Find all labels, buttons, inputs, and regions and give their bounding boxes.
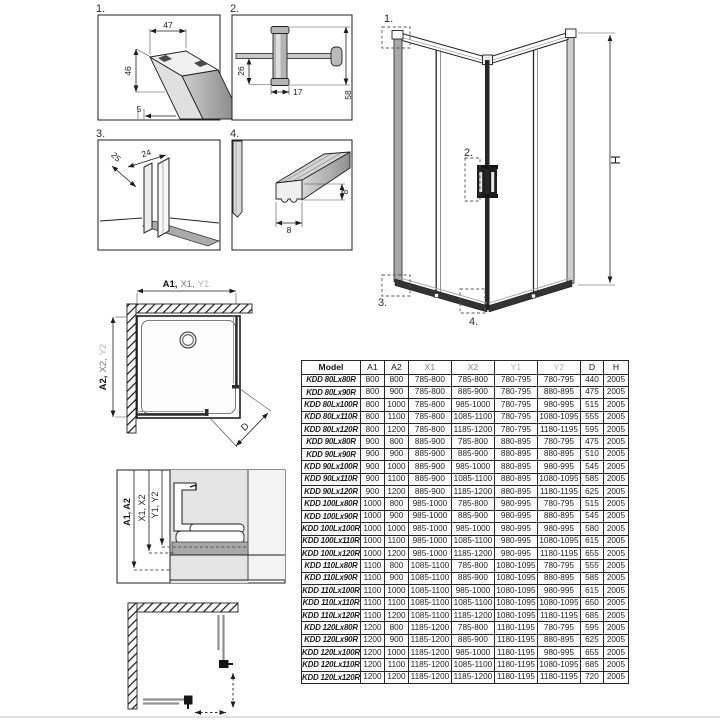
value-cell: 1080-1095: [494, 609, 537, 621]
model-cell: KDD 120Lx110R: [302, 659, 361, 671]
model-cell: KDD 120Lx80R: [302, 622, 361, 634]
column-header: Y2: [537, 361, 580, 375]
value-cell: 2005: [603, 560, 628, 572]
model-cell: KDD 120Lx100R: [302, 647, 361, 659]
value-cell: 475: [580, 436, 603, 448]
value-cell: 1185-1200: [451, 424, 494, 436]
dim-8-bottom: 8: [287, 225, 292, 235]
value-cell: 1085-1100: [408, 560, 451, 572]
model-cell: KDD 110Lx120R: [302, 609, 361, 621]
value-cell: 685: [580, 609, 603, 621]
plan-width-label: A1,X1,Y1: [163, 279, 210, 290]
table-row: KDD 80Lx80R800800785-800785-800780-79578…: [302, 374, 629, 386]
value-cell: 2005: [603, 399, 628, 411]
value-cell: 880-895: [537, 572, 580, 584]
value-cell: 985-1000: [408, 547, 451, 559]
value-cell: 880-895: [494, 486, 537, 498]
value-cell: 980-995: [537, 647, 580, 659]
value-cell: 1080-1095: [537, 597, 580, 609]
corner-cap: [392, 31, 403, 40]
model-cell: KDD 80Lx120R: [302, 424, 361, 436]
value-cell: 1185-1200: [451, 671, 494, 683]
value-cell: 880-895: [494, 461, 537, 473]
value-cell: 780-795: [494, 399, 537, 411]
section-x-label: X1, X2: [137, 494, 147, 521]
value-cell: 985-1000: [408, 523, 451, 535]
left-wall-post: [394, 35, 402, 284]
dim-26: 26: [236, 66, 246, 76]
value-cell: 800: [384, 374, 408, 386]
value-cell: 2005: [603, 634, 628, 646]
value-cell: 1200: [360, 622, 384, 634]
glass-panel-edge: [233, 141, 242, 217]
value-cell: 880-895: [537, 510, 580, 522]
table-row: KDD 100Lx120R10001200985-10001185-120098…: [302, 547, 629, 559]
value-cell: 900: [360, 473, 384, 485]
table-row: KDD 120Lx80R12008001185-1200785-8001180-…: [302, 622, 629, 634]
section-y-label: Y1, Y2: [150, 492, 160, 519]
model-cell: KDD 110Lx80R: [302, 560, 361, 572]
table-row: KDD 90Lx80R900800885-900785-800880-89578…: [302, 436, 629, 448]
value-cell: 1085-1100: [451, 535, 494, 547]
track-bar: [172, 542, 248, 555]
value-cell: 1180-1195: [537, 671, 580, 683]
column-header: Model: [302, 361, 361, 375]
value-cell: 2005: [603, 436, 628, 448]
value-cell: 545: [580, 510, 603, 522]
value-cell: 1200: [360, 634, 384, 646]
model-cell: KDD 90Lx110R: [302, 473, 361, 485]
detail-drawing-4: 4. 8 8: [230, 128, 352, 250]
value-cell: 515: [580, 399, 603, 411]
table-row: KDD 90Lx90R900900885-900885-900880-89588…: [302, 448, 629, 460]
glass-panel: [158, 158, 169, 237]
detail-3-label: 3.: [96, 128, 105, 140]
wall-top: [128, 603, 238, 612]
value-cell: 900: [384, 510, 408, 522]
value-cell: 1180-1195: [494, 659, 537, 671]
value-cell: 2005: [603, 386, 628, 398]
value-cell: 1085-1100: [408, 572, 451, 584]
value-cell: 1185-1200: [408, 647, 451, 659]
value-cell: 785-800: [451, 374, 494, 386]
model-cell: KDD 80Lx110R: [302, 411, 361, 423]
value-cell: 980-995: [494, 498, 537, 510]
value-cell: 1200: [360, 671, 384, 683]
value-cell: 2005: [603, 498, 628, 510]
value-cell: 2005: [603, 523, 628, 535]
value-cell: 780-795: [537, 498, 580, 510]
model-cell: KDD 80Lx80R: [302, 374, 361, 386]
value-cell: 1100: [360, 597, 384, 609]
value-cell: 800: [360, 411, 384, 423]
value-cell: 1185-1200: [408, 634, 451, 646]
value-cell: 1180-1195: [537, 424, 580, 436]
value-cell: 980-995: [537, 461, 580, 473]
value-cell: 1080-1095: [537, 473, 580, 485]
model-cell: KDD 100Lx110R: [302, 535, 361, 547]
value-cell: 780-795: [494, 386, 537, 398]
value-cell: 1185-1200: [408, 671, 451, 683]
detail-2-label: 2.: [230, 3, 239, 15]
value-cell: 555: [580, 560, 603, 572]
value-cell: 800: [360, 399, 384, 411]
table-row: KDD 110Lx110R110011001085-11001085-11001…: [302, 597, 629, 609]
value-cell: 1000: [384, 647, 408, 659]
value-cell: 1180-1195: [537, 547, 580, 559]
value-cell: 885-900: [408, 473, 451, 485]
top-rail-left: [402, 34, 484, 64]
value-cell: 785-800: [451, 622, 494, 634]
table-row: KDD 100Lx100R10001000985-1000985-1000980…: [302, 523, 629, 535]
value-cell: 1180-1195: [494, 671, 537, 683]
value-cell: 1085-1100: [451, 597, 494, 609]
callout-4-label: 4.: [469, 316, 478, 328]
value-cell: 595: [580, 622, 603, 634]
model-cell: KDD 80Lx90R: [302, 386, 361, 398]
knob: [331, 47, 342, 66]
table-row: KDD 110Lx90R11009001085-1100885-9001080-…: [302, 572, 629, 584]
plan-depth-label: A2,X2,Y2: [98, 344, 109, 391]
value-cell: 1100: [384, 411, 408, 423]
value-cell: 800: [360, 374, 384, 386]
value-cell: 785-800: [408, 399, 451, 411]
value-cell: 980-995: [537, 399, 580, 411]
value-cell: 985-1000: [451, 399, 494, 411]
value-cell: 800: [384, 560, 408, 572]
value-cell: 580: [580, 523, 603, 535]
value-cell: 1100: [360, 560, 384, 572]
table-row: KDD 120Lx120R120012001185-12001185-12001…: [302, 671, 629, 683]
value-cell: 515: [580, 498, 603, 510]
model-cell: KDD 120Lx120R: [302, 671, 361, 683]
table-row: KDD 110Lx100R110010001085-1100985-100010…: [302, 585, 629, 597]
door-slide-schematic: [128, 603, 238, 713]
value-cell: 800: [384, 436, 408, 448]
value-cell: 1000: [384, 585, 408, 597]
value-cell: 785-800: [408, 386, 451, 398]
model-cell: KDD 100Lx80R: [302, 498, 361, 510]
table-body: KDD 80Lx80R800800785-800785-800780-79578…: [302, 374, 629, 684]
table-row: KDD 110Lx120R110012001085-11001185-12001…: [302, 609, 629, 621]
value-cell: 2005: [603, 659, 628, 671]
value-cell: 880-895: [537, 448, 580, 460]
wall-left: [128, 603, 137, 709]
table-row: KDD 120Lx90R12009001185-1200885-9001180-…: [302, 634, 629, 646]
value-cell: 1080-1095: [494, 597, 537, 609]
plan-view: A1,X1,Y1 A2,X2,Y2 D: [98, 279, 271, 447]
dim-46: 46: [123, 66, 133, 76]
value-cell: 785-800: [451, 560, 494, 572]
value-cell: 1200: [384, 609, 408, 621]
model-cell: KDD 110Lx100R: [302, 585, 361, 597]
value-cell: 475: [580, 386, 603, 398]
value-cell: 985-1000: [408, 510, 451, 522]
handle-mark: [184, 696, 193, 705]
dim-47: 47: [163, 20, 173, 30]
value-cell: 625: [580, 634, 603, 646]
detail-drawing-2: 2. 26 17 58: [230, 3, 353, 120]
value-cell: 785-800: [451, 498, 494, 510]
value-cell: 510: [580, 448, 603, 460]
value-cell: 1185-1200: [451, 547, 494, 559]
value-cell: 555: [580, 411, 603, 423]
model-cell: KDD 110Lx110R: [302, 597, 361, 609]
value-cell: 780-795: [537, 436, 580, 448]
value-cell: 985-1000: [451, 647, 494, 659]
value-cell: 800: [360, 424, 384, 436]
value-cell: 2005: [603, 647, 628, 659]
dim-8-right: 8: [340, 189, 350, 194]
column-header: H: [603, 361, 628, 375]
table-row: KDD 100Lx90R1000900985-1000885-900980-99…: [302, 510, 629, 522]
handle-mark: [219, 660, 229, 668]
value-cell: 2005: [603, 622, 628, 634]
model-cell: KDD 120Lx90R: [302, 634, 361, 646]
top-rail-right: [491, 33, 568, 64]
value-cell: 985-1000: [408, 498, 451, 510]
value-cell: 980-995: [494, 510, 537, 522]
value-cell: 780-795: [537, 622, 580, 634]
value-cell: 2005: [603, 448, 628, 460]
value-cell: 440: [580, 374, 603, 386]
value-cell: 980-995: [494, 523, 537, 535]
value-cell: 2005: [603, 547, 628, 559]
model-cell: KDD 100Lx100R: [302, 523, 361, 535]
value-cell: 900: [384, 386, 408, 398]
model-cell: KDD 90Lx100R: [302, 461, 361, 473]
value-cell: 615: [580, 535, 603, 547]
table-row: KDD 90Lx110R9001100885-9001085-1100880-8…: [302, 473, 629, 485]
value-cell: 2005: [603, 461, 628, 473]
column-header: A2: [384, 361, 408, 375]
bottom-rail-right: [489, 280, 572, 312]
value-cell: 785-800: [408, 411, 451, 423]
main-assembly-drawing: 1. 2. 3. 4. H: [378, 13, 623, 328]
callout-3-label: 3.: [378, 297, 387, 309]
value-cell: 2005: [603, 535, 628, 547]
value-cell: 785-800: [408, 374, 451, 386]
column-header: X1: [408, 361, 451, 375]
value-cell: 1000: [360, 547, 384, 559]
table-row: KDD 80Lx100R8001000785-800985-1000780-79…: [302, 399, 629, 411]
model-cell: KDD 80Lx100R: [302, 399, 361, 411]
value-cell: 780-795: [537, 560, 580, 572]
value-cell: 1100: [384, 597, 408, 609]
value-cell: 2005: [603, 411, 628, 423]
corner-mullion: [485, 60, 490, 310]
value-cell: 980-995: [494, 547, 537, 559]
table-row: KDD 110Lx80R11008001085-1100785-8001080-…: [302, 560, 629, 572]
bottom-rail-left: [395, 279, 487, 312]
value-cell: 880-895: [494, 473, 537, 485]
value-cell: 880-895: [494, 436, 537, 448]
detail-4-label: 4.: [230, 128, 239, 140]
model-cell: KDD 90Lx120R: [302, 486, 361, 498]
water-bar-profile: [276, 180, 302, 202]
corner-cap: [566, 29, 577, 38]
detail-drawing-1: 1. 47 46 5: [96, 3, 242, 120]
model-cell: KDD 90Lx80R: [302, 436, 361, 448]
value-cell: 1100: [384, 659, 408, 671]
value-cell: 1200: [384, 671, 408, 683]
value-cell: 655: [580, 647, 603, 659]
value-cell: 1085-1100: [408, 585, 451, 597]
value-cell: 1180-1195: [494, 622, 537, 634]
glass-panel: [144, 163, 152, 233]
detail-drawing-3: 3. 24 25: [96, 128, 220, 250]
value-cell: 1080-1095: [494, 560, 537, 572]
value-cell: 1200: [384, 486, 408, 498]
spec-table: ModelA1A2X1X2Y1Y2DH KDD 80Lx80R800800785…: [301, 360, 629, 684]
value-cell: 1000: [384, 523, 408, 535]
value-cell: 1000: [360, 535, 384, 547]
table-row: KDD 80Lx120R8001200785-8001185-1200780-7…: [302, 424, 629, 436]
value-cell: 980-995: [537, 585, 580, 597]
value-cell: 985-1000: [451, 461, 494, 473]
value-cell: 1000: [360, 498, 384, 510]
value-cell: 1085-1100: [408, 597, 451, 609]
value-cell: 595: [580, 424, 603, 436]
value-cell: 685: [580, 659, 603, 671]
value-cell: 2005: [603, 585, 628, 597]
value-cell: 2005: [603, 374, 628, 386]
value-cell: 615: [580, 585, 603, 597]
value-cell: 800: [360, 386, 384, 398]
value-cell: 885-900: [408, 448, 451, 460]
dim-17: 17: [293, 87, 303, 97]
wall-top: [127, 304, 252, 313]
column-header: D: [580, 361, 603, 375]
value-cell: 1100: [360, 572, 384, 584]
right-wall-post: [567, 33, 574, 285]
value-cell: 1085-1100: [408, 609, 451, 621]
callout-1-label: 1.: [384, 13, 393, 25]
value-cell: 780-795: [537, 374, 580, 386]
value-cell: 900: [360, 436, 384, 448]
value-cell: 2005: [603, 609, 628, 621]
value-cell: 800: [384, 622, 408, 634]
value-cell: 2005: [603, 597, 628, 609]
value-cell: 1080-1095: [537, 411, 580, 423]
value-cell: 900: [360, 448, 384, 460]
table-row: KDD 80Lx90R800900785-800885-900780-79588…: [302, 386, 629, 398]
table-row: KDD 80Lx110R8001100785-8001085-1100780-7…: [302, 411, 629, 423]
value-cell: 1085-1100: [451, 473, 494, 485]
value-cell: 1200: [360, 659, 384, 671]
value-cell: 1000: [360, 523, 384, 535]
value-cell: 1180-1195: [537, 609, 580, 621]
table-row: KDD 90Lx100R9001000885-900985-1000880-89…: [302, 461, 629, 473]
value-cell: 1080-1095: [494, 585, 537, 597]
value-cell: 900: [384, 448, 408, 460]
value-cell: 880-895: [537, 634, 580, 646]
value-cell: 785-800: [408, 424, 451, 436]
value-cell: 880-895: [537, 386, 580, 398]
table-row: KDD 100Lx110R10001100985-10001085-110098…: [302, 535, 629, 547]
value-cell: 650: [580, 597, 603, 609]
value-cell: 900: [384, 572, 408, 584]
callout-2-label: 2.: [464, 147, 473, 159]
value-cell: 800: [384, 498, 408, 510]
section-a-label: A1, A2: [122, 498, 132, 526]
value-cell: 2005: [603, 424, 628, 436]
value-cell: 1185-1200: [451, 486, 494, 498]
column-header: X2: [451, 361, 494, 375]
value-cell: 980-995: [494, 535, 537, 547]
column-header: A1: [360, 361, 384, 375]
table-row: KDD 120Lx110R120011001185-12001085-11001…: [302, 659, 629, 671]
value-cell: 1200: [384, 424, 408, 436]
value-cell: 1185-1200: [451, 609, 494, 621]
value-cell: 1080-1095: [537, 535, 580, 547]
wall-section-view: A1, A2 X1, X2 Y1, Y2: [117, 470, 285, 583]
value-cell: 985-1000: [408, 535, 451, 547]
value-cell: 1180-1195: [494, 647, 537, 659]
value-cell: 1100: [360, 609, 384, 621]
table-row: KDD 120Lx100R120010001185-1200985-100011…: [302, 647, 629, 659]
model-cell: KDD 110Lx90R: [302, 572, 361, 584]
value-cell: 885-900: [451, 572, 494, 584]
value-cell: 885-900: [451, 448, 494, 460]
value-cell: 880-895: [494, 448, 537, 460]
value-cell: 885-900: [451, 510, 494, 522]
value-cell: 545: [580, 461, 603, 473]
value-cell: 780-795: [494, 424, 537, 436]
value-cell: 780-795: [494, 411, 537, 423]
value-cell: 1180-1195: [494, 634, 537, 646]
value-cell: 1100: [360, 585, 384, 597]
value-cell: 785-800: [451, 436, 494, 448]
value-cell: 655: [580, 547, 603, 559]
value-cell: 780-795: [494, 374, 537, 386]
dim-5: 5: [137, 104, 142, 114]
value-cell: 1180-1195: [537, 486, 580, 498]
height-h-label: H: [609, 155, 623, 164]
column-header: Y1: [494, 361, 537, 375]
value-cell: 2005: [603, 572, 628, 584]
value-cell: 1080-1095: [537, 659, 580, 671]
spec-table-container: ModelA1A2X1X2Y1Y2DH KDD 80Lx80R800800785…: [301, 360, 629, 684]
value-cell: 1100: [384, 473, 408, 485]
value-cell: 585: [580, 572, 603, 584]
table-header-row: ModelA1A2X1X2Y1Y2DH: [302, 361, 629, 375]
value-cell: 900: [360, 461, 384, 473]
value-cell: 1200: [384, 547, 408, 559]
value-cell: 2005: [603, 671, 628, 683]
value-cell: 625: [580, 486, 603, 498]
value-cell: 985-1000: [451, 523, 494, 535]
dim-58: 58: [343, 90, 353, 100]
model-cell: KDD 100Lx90R: [302, 510, 361, 522]
value-cell: 1085-1100: [451, 659, 494, 671]
value-cell: 885-900: [451, 634, 494, 646]
value-cell: 885-900: [408, 436, 451, 448]
table-row: KDD 100Lx80R1000800985-1000785-800980-99…: [302, 498, 629, 510]
value-cell: 1200: [360, 647, 384, 659]
value-cell: 980-995: [537, 523, 580, 535]
value-cell: 885-900: [408, 486, 451, 498]
table-row: KDD 90Lx120R9001200885-9001185-1200880-8…: [302, 486, 629, 498]
value-cell: 2005: [603, 473, 628, 485]
value-cell: 1000: [384, 461, 408, 473]
value-cell: 900: [360, 486, 384, 498]
value-cell: 1185-1200: [408, 659, 451, 671]
value-cell: 1185-1200: [408, 622, 451, 634]
wall-left: [127, 304, 136, 433]
value-cell: 1085-1100: [451, 411, 494, 423]
value-cell: 985-1000: [451, 585, 494, 597]
